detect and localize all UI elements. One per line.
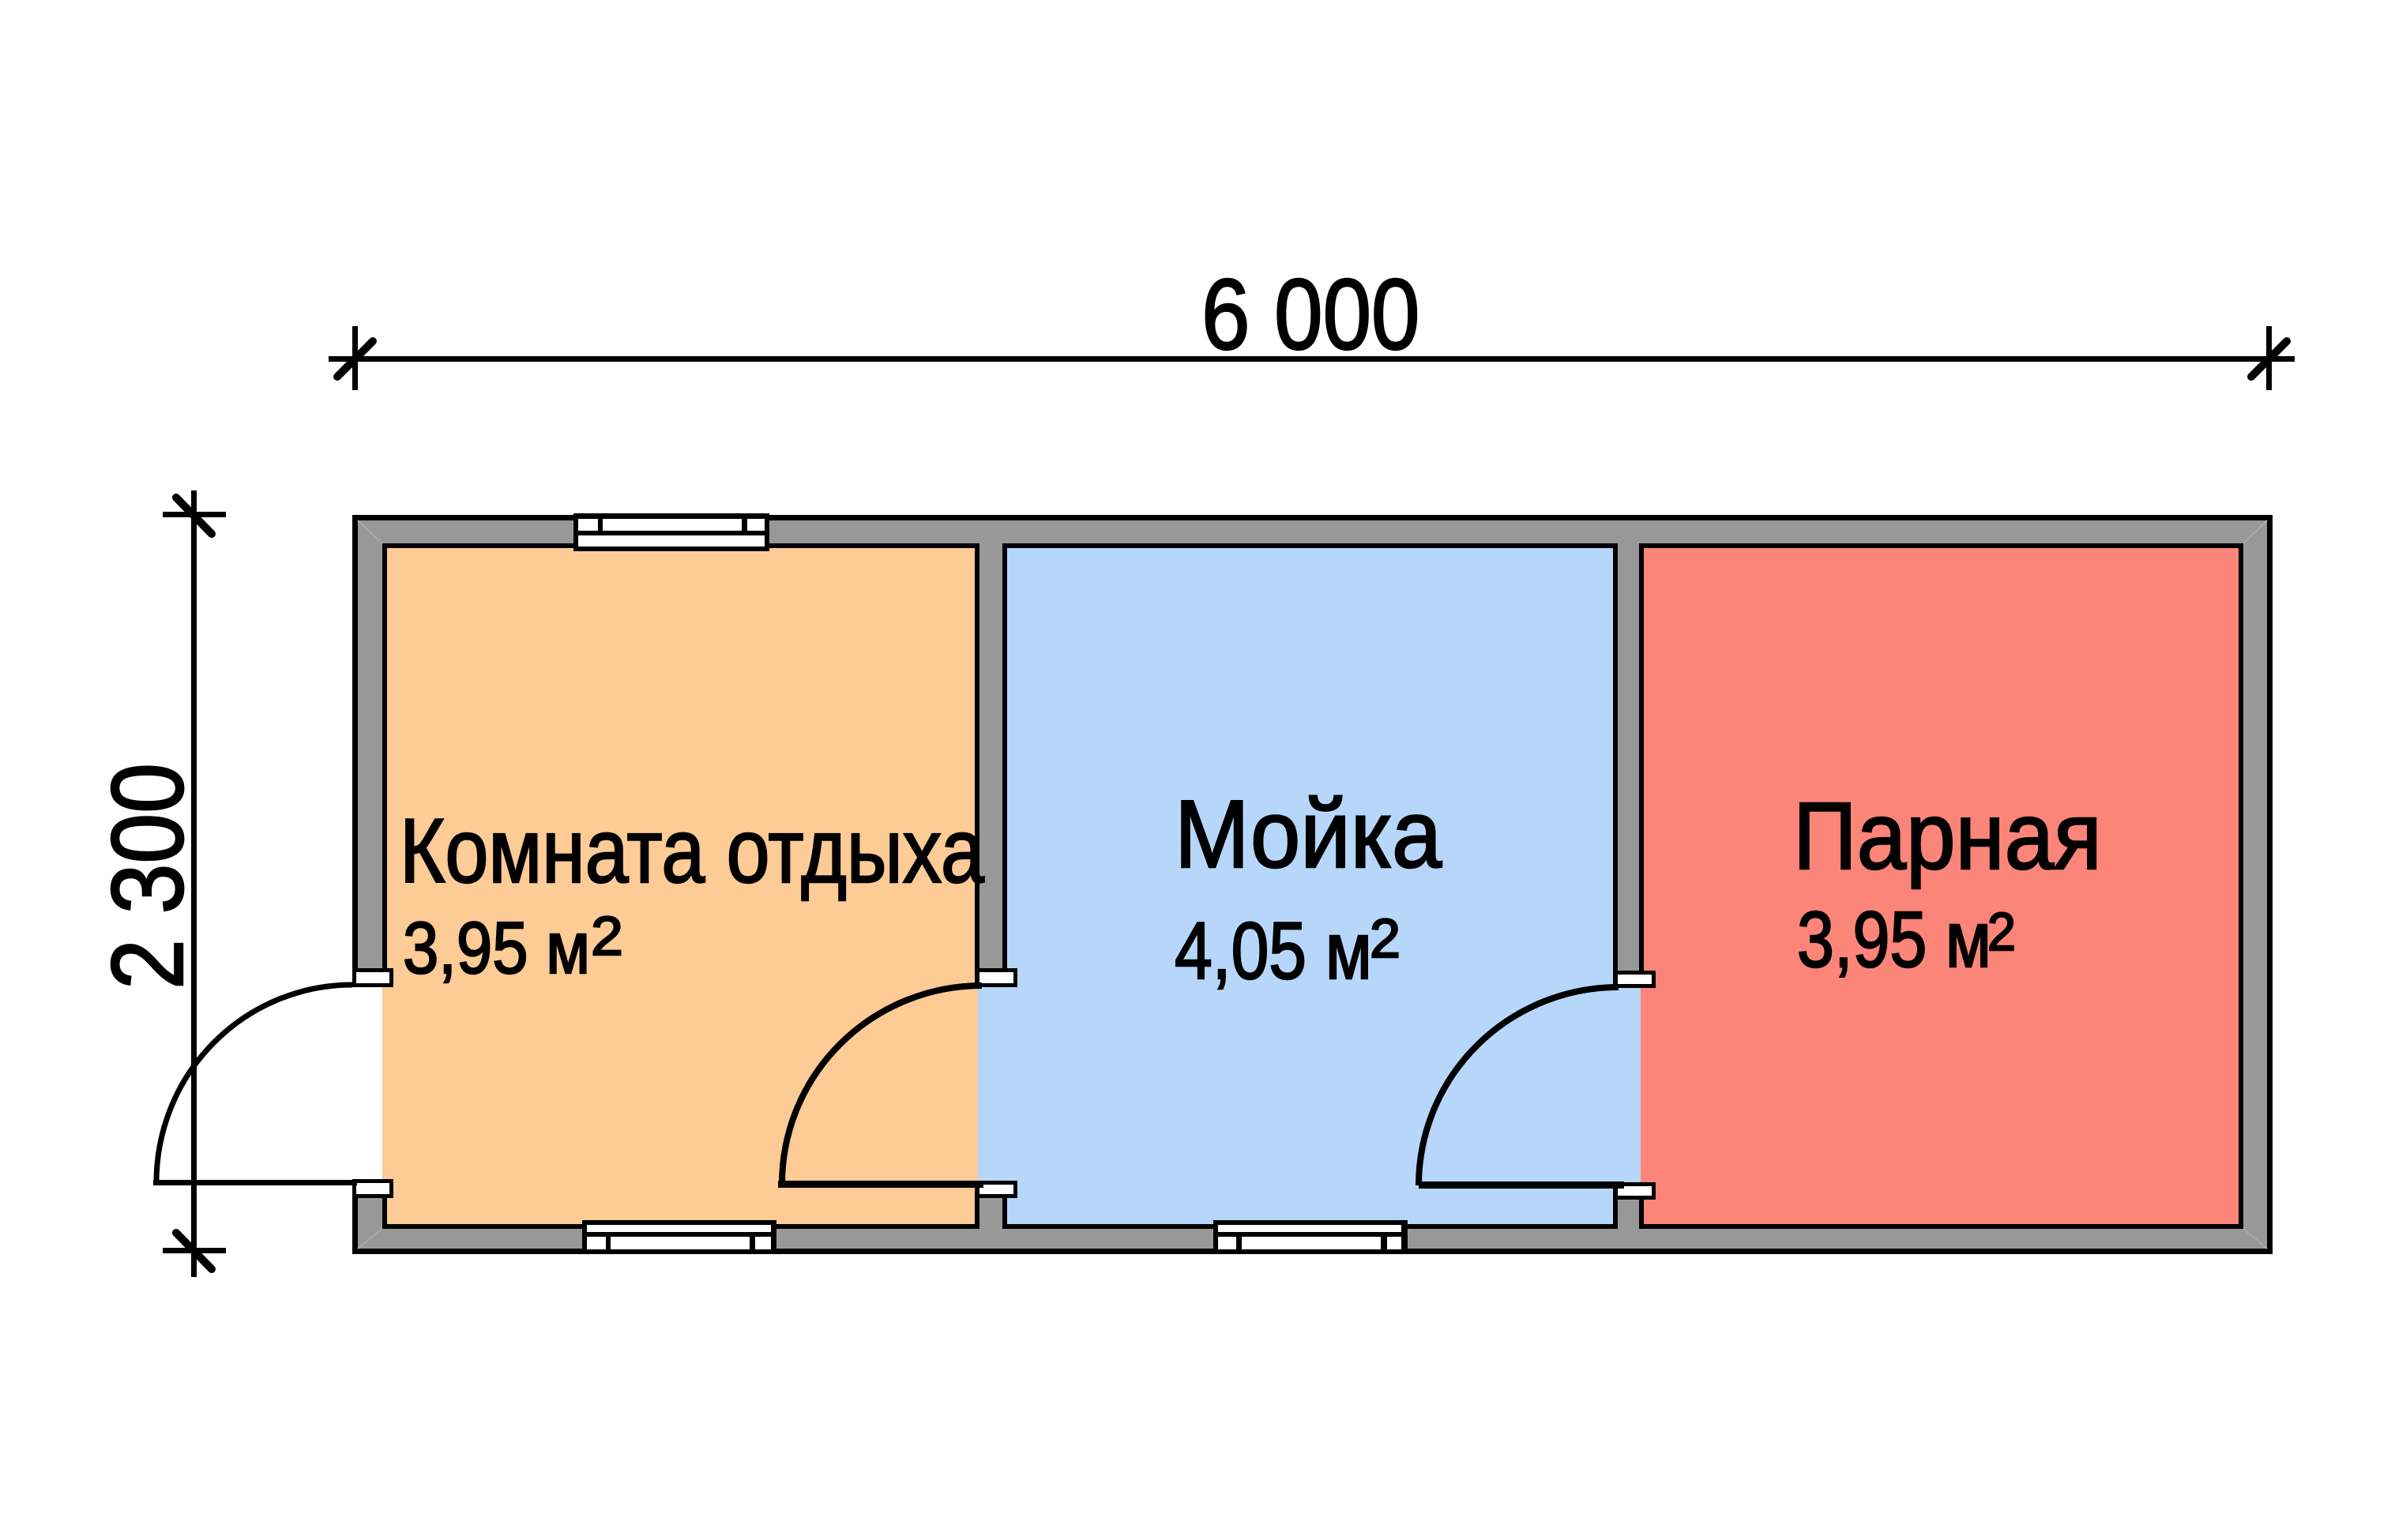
svg-text:6 000: 6 000 [1201, 259, 1419, 371]
svg-text:4,05 м: 4,05 м [1175, 906, 1372, 996]
svg-text:Комната отдыха: Комната отдыха [400, 800, 984, 902]
svg-text:2: 2 [1370, 907, 1401, 969]
svg-text:Парная: Парная [1793, 782, 2102, 889]
svg-text:3,95 м: 3,95 м [1797, 895, 1991, 983]
svg-text:2: 2 [591, 906, 623, 967]
svg-text:2: 2 [1987, 903, 2016, 963]
svg-text:Мойка: Мойка [1175, 779, 1442, 888]
svg-text:2 300: 2 300 [91, 763, 205, 990]
svg-text:3,95 м: 3,95 м [403, 907, 590, 989]
